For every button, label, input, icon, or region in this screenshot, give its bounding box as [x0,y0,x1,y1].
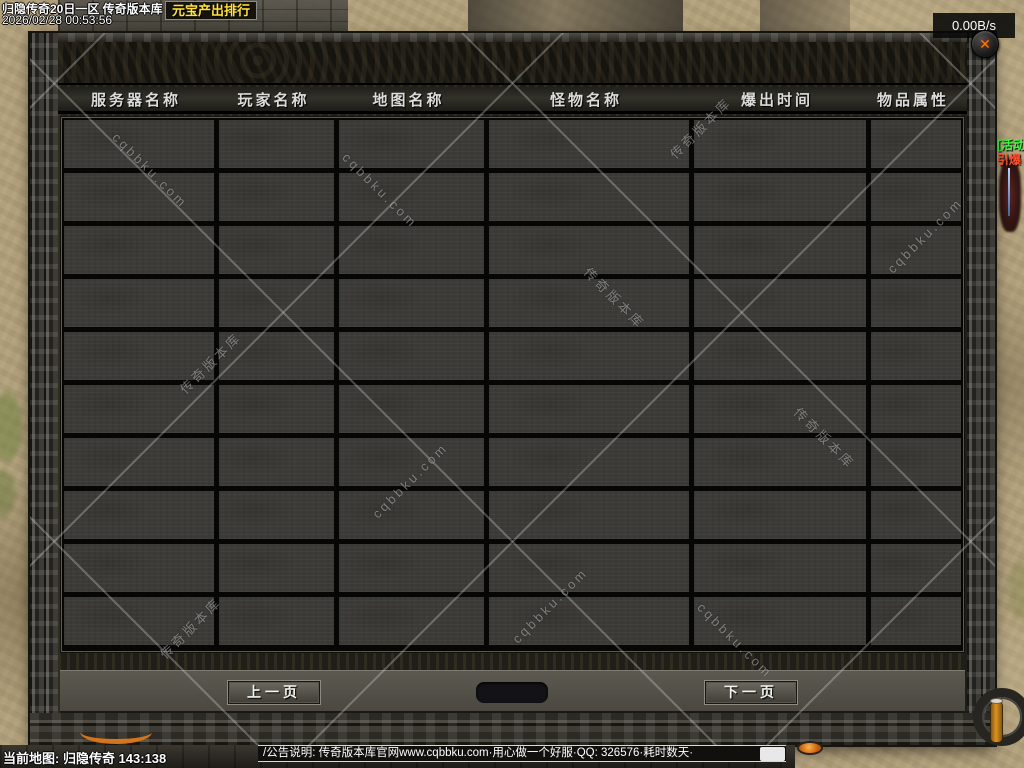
world-pillar-shadow [468,0,683,34]
npc-sprite [999,158,1021,232]
column-header: 怪物名称 [486,89,686,110]
world-moss-patch [0,392,22,462]
table-cell [489,279,689,327]
table-cell [489,385,689,433]
table-cell [871,173,961,221]
table-cell [64,173,214,221]
table-cell [219,226,334,274]
table-cell [489,438,689,486]
column-header: 地图名称 [336,89,481,110]
current-map-label: 当前地图: 归隐传奇 143:138 [3,748,166,767]
pagination-bar: 上一页 下一页 [60,670,965,713]
table-cell [339,120,484,168]
table-cell [694,597,866,645]
table-cell [694,332,866,380]
table-cell [694,438,866,486]
table-cell [64,279,214,327]
datetime-label: 2026/02/28 00:53:56 [2,13,112,27]
table-cell [871,332,961,380]
table-cell [339,385,484,433]
world-bottle-prop [990,701,1003,743]
table-cell [219,279,334,327]
table-cell [694,544,866,592]
world-pillar-shadow [760,0,850,34]
hud-orb-icon [797,741,823,755]
table-cell [871,438,961,486]
prev-page-button[interactable]: 上一页 [228,681,320,704]
table-cell [64,332,214,380]
table-cell [64,597,214,645]
table-cell [64,544,214,592]
table-cell [339,597,484,645]
table-cell [694,173,866,221]
table-cell [219,173,334,221]
table-cell [871,385,961,433]
table-cell [489,226,689,274]
table-cell [339,438,484,486]
table-cell [694,226,866,274]
table-cell [219,332,334,380]
table-cell [871,279,961,327]
table-cell [694,120,866,168]
table-cell [219,438,334,486]
panel-border-bottom [30,713,995,745]
table-cell [489,544,689,592]
panel-border-right [967,33,995,745]
table-cell [694,279,866,327]
table-cell [219,491,334,539]
column-header: 服务器名称 [61,89,211,110]
table-cell [871,597,961,645]
table-cell [219,385,334,433]
table-header-row: 服务器名称玩家名称地图名称怪物名称爆出时间物品属性 [58,87,967,114]
world-bottle-prop [990,698,1003,704]
table-cell [219,544,334,592]
panel-body: 服务器名称玩家名称地图名称怪物名称爆出时间物品属性 上一页 下一页 [58,42,967,713]
table-cell [871,226,961,274]
table-cell [219,120,334,168]
drop-table [61,117,964,652]
table-cell [339,544,484,592]
table-cell [339,173,484,221]
table-cell [489,491,689,539]
npc-staff [1008,168,1010,216]
gold-rank-label: 元宝产出排行 [165,1,257,20]
table-cell [871,120,961,168]
table-cell [64,120,214,168]
table-cell [339,491,484,539]
table-cell [339,226,484,274]
table-cell [339,332,484,380]
panel-border-left [30,33,58,745]
table-cell [489,120,689,168]
column-header: 物品属性 [868,89,958,110]
table-cell [871,491,961,539]
panel-border-top [30,33,995,42]
world-moss-patch [0,470,16,516]
drop-ranking-panel: 服务器名称玩家名称地图名称怪物名称爆出时间物品属性 上一页 下一页 [30,33,995,745]
table-cell [64,438,214,486]
table-cell [489,173,689,221]
announcement-ticker: /公告说明: 传奇版本库官网www.cqbbku.com·用心做一个好服·QQ:… [258,745,786,762]
world-moss-patch [1008,560,1024,620]
table-cell [339,279,484,327]
table-cell [489,597,689,645]
game-screen: [活动] 引爆 服务器名称玩家名称地图名称怪物名称爆出时间物品属性 上一页 下一… [0,0,1024,768]
table-cell [64,226,214,274]
table-cell [489,332,689,380]
announcement-endcap [760,747,785,761]
table-cell [871,544,961,592]
table-cell [64,385,214,433]
table-cell [694,491,866,539]
next-page-button[interactable]: 下一页 [705,681,797,704]
table-cell [64,491,214,539]
close-icon[interactable]: ✕ [971,30,999,58]
panel-title-strip [58,42,967,85]
page-indicator-box [476,682,548,703]
npc-name-label: 引爆 [997,151,1024,168]
column-header: 爆出时间 [691,89,863,110]
table-cell [694,385,866,433]
column-header: 玩家名称 [216,89,331,110]
table-cell [219,597,334,645]
